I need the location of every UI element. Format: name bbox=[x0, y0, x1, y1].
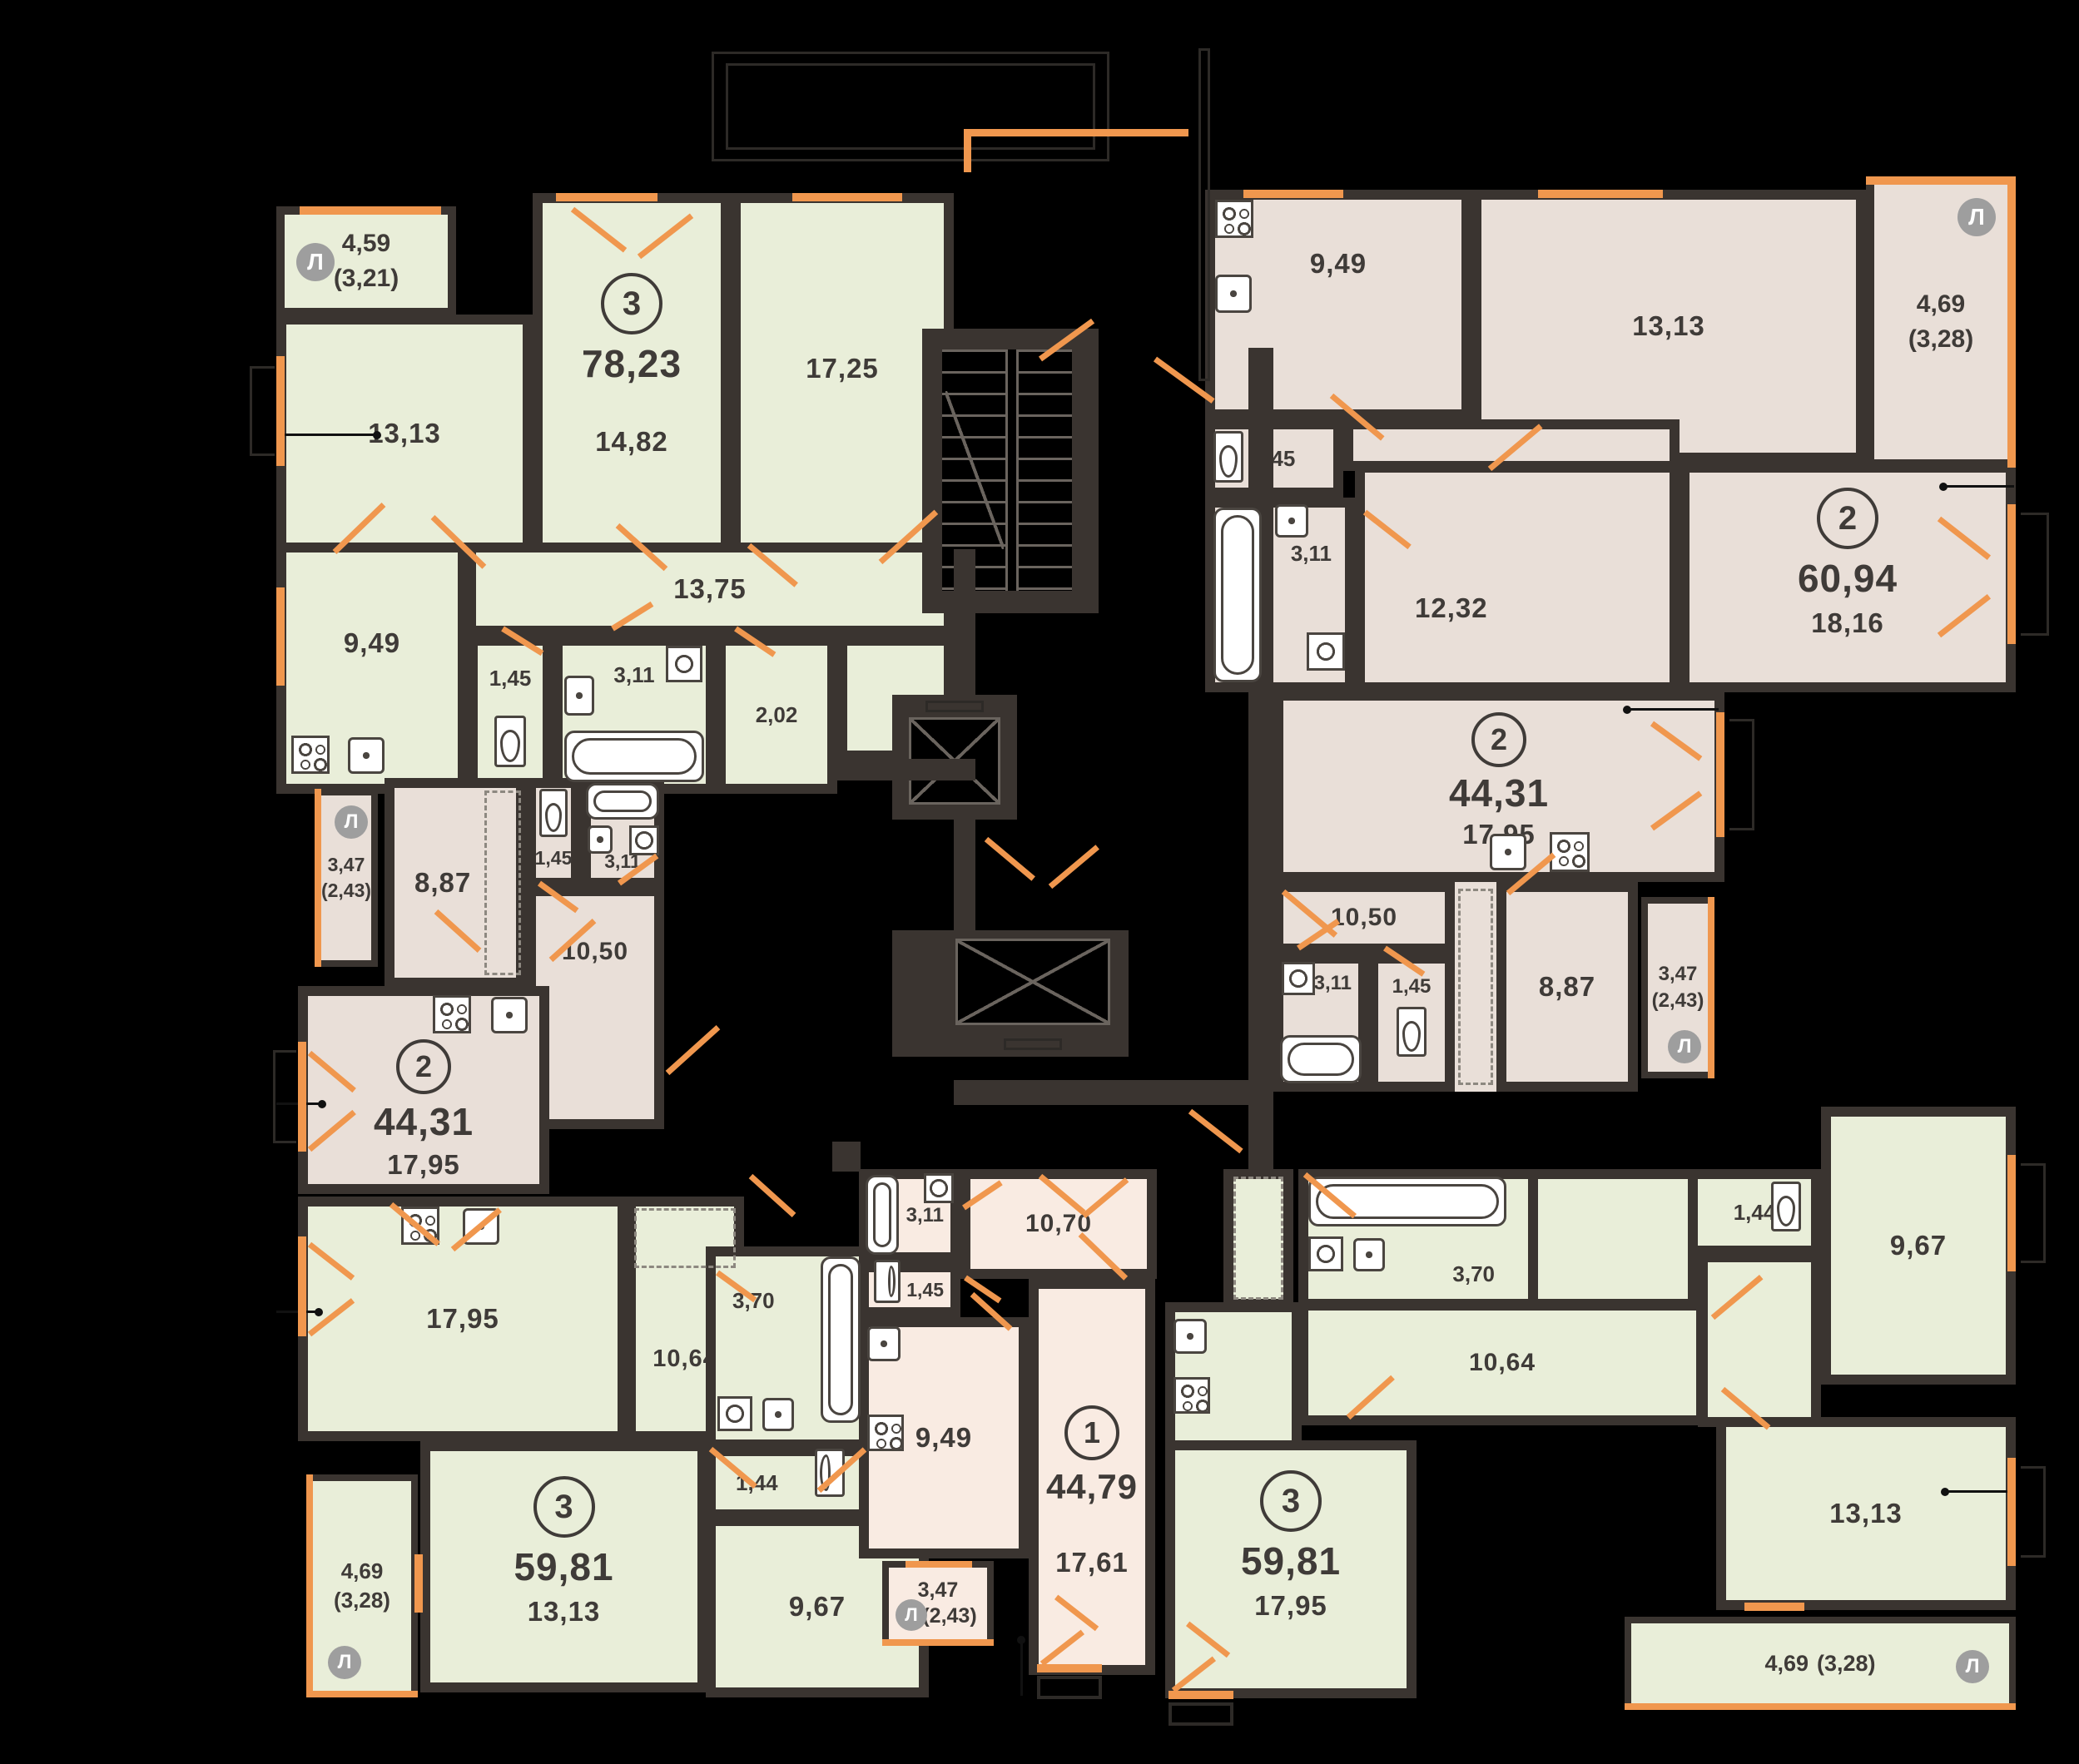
room-label: 3,11 bbox=[906, 1204, 944, 1227]
corridor-door-swing bbox=[1188, 1109, 1243, 1154]
room-label: (3,28) bbox=[1817, 1651, 1876, 1677]
apartment-area: 78,23 bbox=[582, 341, 682, 386]
window-bracket bbox=[2021, 513, 2049, 636]
window bbox=[1716, 712, 1724, 837]
apt1-wc: 1,45 bbox=[468, 636, 553, 794]
room-label: 12,32 bbox=[1415, 592, 1488, 624]
room-label: 13,13 bbox=[1632, 310, 1705, 342]
window bbox=[276, 587, 285, 686]
room-label: 9,49 bbox=[344, 627, 400, 659]
room-label: 2,02 bbox=[756, 702, 798, 728]
window-bracket bbox=[2021, 1466, 2046, 1558]
apt2-loggia: Л 4,69 (3,28) bbox=[1866, 176, 2016, 468]
room-label: 4,69 bbox=[341, 1558, 384, 1584]
apt1-room-1725: 17,25 bbox=[731, 193, 954, 552]
loggia-badge-icon: Л bbox=[1956, 1650, 1989, 1683]
room-label: 8,87 bbox=[414, 867, 471, 899]
apt1-loggia: Л 4,59 (3,21) bbox=[276, 206, 456, 316]
sink-icon bbox=[1173, 1319, 1207, 1354]
apt7-room-1313: 13,13 bbox=[1716, 1417, 2016, 1610]
balcony-door bbox=[1744, 1603, 1804, 1611]
loggia-rail bbox=[1866, 176, 2016, 185]
loggia-rail bbox=[315, 789, 321, 967]
room-label: 1,45 bbox=[906, 1279, 944, 1301]
loggia-rail bbox=[1625, 1703, 2016, 1710]
room-label: 17,95 bbox=[1254, 1590, 1327, 1622]
sink-icon bbox=[867, 1326, 901, 1361]
window bbox=[276, 356, 285, 466]
apartment-number-badge: 3 bbox=[533, 1476, 595, 1538]
room-label: 4,69 bbox=[1917, 290, 1965, 319]
section-mark-line bbox=[1945, 1490, 2013, 1493]
sink-icon bbox=[1353, 1238, 1385, 1271]
bathtub-icon bbox=[821, 1256, 861, 1423]
sink-icon bbox=[1215, 275, 1252, 313]
room-label: 17,61 bbox=[1055, 1547, 1129, 1578]
loggia-rail bbox=[882, 1639, 994, 1646]
corridor-door-swing bbox=[1049, 845, 1099, 889]
window bbox=[792, 193, 902, 201]
room-label: 1,45 bbox=[489, 666, 532, 691]
sink-icon bbox=[564, 676, 594, 716]
room-label: 9,67 bbox=[789, 1591, 846, 1623]
window-bracket bbox=[2021, 1163, 2046, 1263]
apt5-loggia: 4,69 (3,28) Л bbox=[306, 1474, 418, 1697]
toilet-icon bbox=[494, 716, 526, 767]
loggia-badge-icon: Л bbox=[335, 805, 368, 839]
room-label: (3,28) bbox=[334, 1588, 390, 1613]
room-label: (3,28) bbox=[1908, 325, 1973, 354]
washer-icon bbox=[666, 646, 702, 682]
loggia-rail bbox=[306, 1691, 418, 1697]
stove-icon bbox=[867, 1415, 904, 1451]
corridor-wall bbox=[954, 549, 975, 699]
apt1-hall: 13,75 bbox=[466, 543, 954, 636]
corridor-wall bbox=[832, 1142, 861, 1172]
stair-divider bbox=[1005, 349, 1019, 591]
room-label: 13,13 bbox=[1829, 1498, 1903, 1529]
wardrobe-dashed bbox=[1458, 889, 1493, 1085]
room-label: 17,25 bbox=[806, 353, 879, 384]
window bbox=[1243, 190, 1343, 198]
elevator-door bbox=[1004, 1038, 1062, 1050]
apartment-area: 59,81 bbox=[1241, 1539, 1341, 1583]
window-bracket bbox=[1729, 719, 1754, 830]
washer-icon bbox=[1282, 962, 1315, 995]
corridor-wall bbox=[1248, 348, 1273, 1172]
section-mark-line bbox=[276, 1311, 318, 1313]
room-label: 3,11 bbox=[1314, 972, 1352, 995]
apartment-area: 44,31 bbox=[1449, 771, 1549, 815]
apt7-room-967: 9,67 bbox=[1821, 1107, 2016, 1385]
washer-icon bbox=[629, 825, 659, 855]
washer-icon bbox=[717, 1396, 752, 1431]
room-label: 9,49 bbox=[1310, 248, 1367, 280]
room-label: (2,43) bbox=[321, 880, 371, 902]
section-mark-line bbox=[1020, 1639, 1023, 1696]
window bbox=[2007, 1458, 2016, 1566]
sink-icon bbox=[588, 825, 613, 854]
room-label: 18,16 bbox=[1811, 607, 1884, 639]
room-label: 3,47 bbox=[328, 854, 365, 876]
balcony-door bbox=[1169, 1691, 1233, 1699]
bathtub-icon bbox=[1213, 508, 1262, 682]
sink-icon bbox=[491, 997, 528, 1033]
apt7-kitchen-living: 3 59,81 17,95 bbox=[1165, 1440, 1417, 1698]
corridor-wall bbox=[832, 759, 975, 780]
entrance-side-line bbox=[1198, 48, 1210, 381]
entrance-canopy-outline bbox=[726, 63, 1095, 150]
room-label: (3,21) bbox=[334, 265, 399, 293]
stove-icon bbox=[291, 736, 330, 774]
apartment-area: 44,31 bbox=[374, 1099, 474, 1144]
entrance-trim bbox=[964, 129, 971, 172]
apartment-number-badge: 2 bbox=[396, 1039, 451, 1094]
room-label: 4,59 bbox=[342, 230, 390, 258]
window bbox=[906, 1561, 972, 1568]
apartment-number-badge: 1 bbox=[1064, 1405, 1119, 1460]
toilet-icon bbox=[874, 1260, 901, 1303]
loggia-badge-icon: Л bbox=[296, 243, 335, 281]
room-label: 10,50 bbox=[1331, 904, 1397, 932]
room-label: 1,44 bbox=[1734, 1200, 1776, 1226]
loggia-badge-icon: Л bbox=[328, 1646, 361, 1679]
apartment-area: 60,94 bbox=[1798, 556, 1898, 601]
stove-icon bbox=[1215, 200, 1253, 238]
elevator-door bbox=[925, 701, 984, 712]
stove-icon bbox=[1550, 832, 1590, 872]
washer-icon bbox=[1308, 1236, 1343, 1271]
window-bracket bbox=[250, 366, 275, 456]
window bbox=[2007, 504, 2016, 644]
apt6-room-1761: 1 44,79 17,61 bbox=[1029, 1279, 1155, 1675]
floor-plan: Л 4,59 (3,21) 13,13 3 78,23 14,82 17,25 … bbox=[0, 0, 2079, 1764]
apartment-number-badge: 2 bbox=[1471, 712, 1526, 767]
room-label: 4,69 bbox=[1764, 1651, 1809, 1677]
stove-icon bbox=[1173, 1377, 1210, 1414]
apt1-room-1482: 3 78,23 14,82 bbox=[533, 193, 731, 552]
room-label: 3,11 bbox=[613, 662, 654, 688]
door-swing bbox=[749, 1174, 796, 1217]
window-bracket bbox=[273, 1050, 296, 1143]
window bbox=[556, 193, 657, 201]
room-label: 8,87 bbox=[1539, 971, 1595, 1003]
bathtub-icon bbox=[866, 1175, 899, 1255]
room-label: 3,70 bbox=[1452, 1261, 1495, 1287]
sink-icon bbox=[1490, 834, 1526, 870]
wardrobe-dashed bbox=[1233, 1177, 1283, 1300]
apt7-loggia: 4,69 (3,28) Л bbox=[1625, 1617, 2016, 1710]
corridor-door-swing bbox=[985, 837, 1035, 881]
room-label: 17,95 bbox=[426, 1303, 499, 1335]
apt6-loggia: 3,47 (2,43) Л bbox=[882, 1561, 994, 1646]
entrance-porch bbox=[1169, 1702, 1233, 1726]
apartment-area: 44,79 bbox=[1046, 1467, 1138, 1507]
window bbox=[2007, 1155, 2016, 1271]
apt7-hall-north bbox=[1528, 1169, 1698, 1309]
apt7-wc: 1,44 bbox=[1688, 1169, 1821, 1256]
room-label: 9,49 bbox=[915, 1422, 972, 1454]
corridor-wall bbox=[954, 820, 975, 932]
room-label: 14,82 bbox=[595, 426, 668, 458]
sink-icon bbox=[348, 737, 385, 774]
section-mark-line bbox=[1627, 708, 1719, 711]
apartment-number-badge: 2 bbox=[1817, 488, 1878, 549]
apt5-wc: 1,44 bbox=[706, 1446, 871, 1519]
loggia-badge-icon: Л bbox=[896, 1599, 927, 1631]
window bbox=[300, 206, 441, 215]
sink-icon bbox=[1275, 504, 1308, 538]
stair-treads bbox=[1012, 349, 1072, 591]
entrance-trim bbox=[964, 129, 1188, 136]
corridor-wall bbox=[954, 1080, 1273, 1105]
toilet-icon bbox=[1771, 1182, 1801, 1231]
sink-icon bbox=[762, 1398, 794, 1431]
window bbox=[298, 1042, 306, 1152]
toilet-icon bbox=[1397, 1007, 1427, 1057]
wardrobe-dashed bbox=[484, 790, 521, 975]
room-label: (2,43) bbox=[1652, 989, 1704, 1013]
room-label: 1,45 bbox=[1392, 975, 1431, 998]
apt3-loggia: 3,47 (2,43) Л bbox=[1641, 897, 1714, 1078]
loggia-badge-icon: Л bbox=[1957, 198, 1996, 236]
elevator-cage-icon bbox=[955, 939, 1110, 1025]
section-mark-line bbox=[280, 434, 375, 436]
loggia-rail bbox=[1708, 897, 1714, 1078]
apartment-number-badge: 3 bbox=[601, 273, 662, 334]
window bbox=[1538, 190, 1663, 198]
toilet-icon bbox=[539, 789, 568, 837]
room-label: 13,13 bbox=[528, 1596, 601, 1628]
stair-arrow bbox=[945, 391, 1004, 549]
room-label: 9,67 bbox=[1890, 1230, 1947, 1261]
loggia-badge-icon: Л bbox=[1668, 1030, 1701, 1063]
washer-icon bbox=[924, 1173, 954, 1203]
washer-icon bbox=[1307, 632, 1345, 671]
apt3-room-887: 8,87 bbox=[1496, 882, 1638, 1092]
room-label: 17,95 bbox=[387, 1149, 460, 1181]
apt2-room-1816: 2 60,94 18,16 bbox=[1680, 463, 2016, 692]
wardrobe-dashed bbox=[634, 1208, 736, 1268]
bathtub-icon bbox=[564, 731, 704, 782]
apt5-room-1313: 3 59,81 13,13 bbox=[420, 1441, 707, 1692]
section-mark-line bbox=[1943, 485, 2014, 488]
entrance-porch bbox=[1037, 1676, 1102, 1699]
stove-icon bbox=[433, 995, 471, 1033]
window bbox=[298, 1236, 306, 1336]
room-label: 3,11 bbox=[1291, 541, 1332, 567]
room-label: 3,47 bbox=[918, 1578, 959, 1603]
apt4-loggia: Л 3,47 (2,43) bbox=[315, 789, 378, 967]
room-label: (2,43) bbox=[922, 1604, 976, 1628]
room-label: 3,47 bbox=[1659, 963, 1698, 986]
balcony-door bbox=[414, 1554, 423, 1613]
room-label: 10,64 bbox=[1469, 1349, 1536, 1377]
apartment-number-badge: 3 bbox=[1260, 1470, 1322, 1532]
apartment-area: 59,81 bbox=[514, 1544, 613, 1589]
room-label: 13,75 bbox=[673, 573, 747, 605]
loggia-rail bbox=[306, 1474, 313, 1697]
bathtub-icon bbox=[586, 783, 659, 820]
bathtub-icon bbox=[1280, 1035, 1362, 1083]
toilet-icon bbox=[1213, 431, 1243, 483]
loggia-rail bbox=[2007, 176, 2016, 468]
room-label: 1,45 bbox=[535, 847, 573, 870]
apt1-storage: 2,02 bbox=[716, 636, 837, 794]
balcony-door bbox=[1037, 1664, 1102, 1672]
apartment4-entry-door bbox=[666, 1025, 721, 1075]
apt2-hall: 12,32 bbox=[1355, 463, 1680, 692]
